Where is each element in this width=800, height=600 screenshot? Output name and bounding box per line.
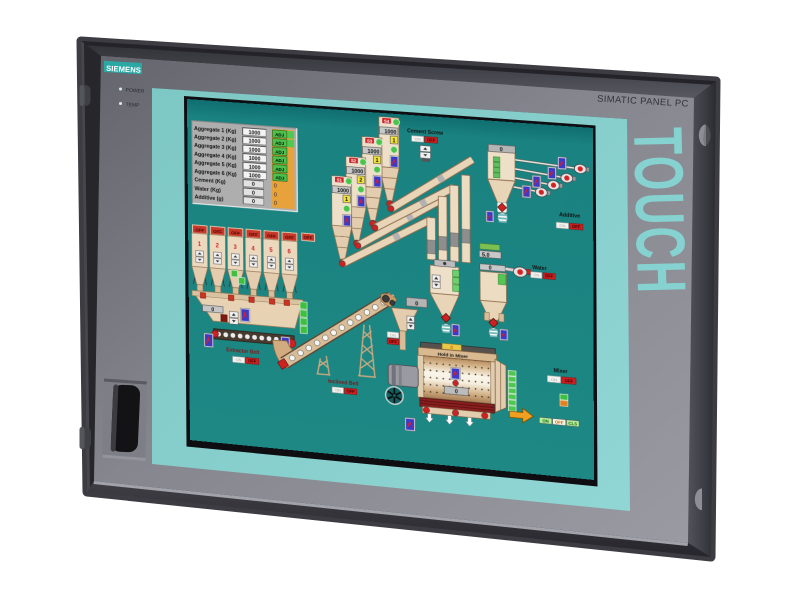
svg-text:ON: ON — [559, 223, 565, 229]
svg-text:1: 1 — [392, 138, 395, 144]
svg-text:0: 0 — [252, 199, 255, 205]
svg-text:1000: 1000 — [249, 147, 261, 154]
svg-text:ADJ: ADJ — [275, 175, 285, 181]
svg-text:1000: 1000 — [384, 129, 396, 136]
svg-text:ON: ON — [542, 418, 548, 424]
svg-text:1000: 1000 — [351, 169, 363, 176]
svg-text:S2: S2 — [351, 158, 357, 164]
svg-text:1: 1 — [345, 197, 348, 203]
svg-text:0: 0 — [274, 201, 277, 207]
svg-text:ADJ: ADJ — [275, 149, 285, 155]
svg-text:Water: Water — [532, 265, 547, 272]
svg-text:0: 0 — [252, 190, 255, 196]
svg-text:1000: 1000 — [249, 138, 261, 145]
svg-text:1000: 1000 — [249, 164, 261, 171]
svg-text:S4: S4 — [384, 118, 390, 124]
svg-text:0: 0 — [415, 301, 418, 307]
svg-text:ADJ: ADJ — [275, 141, 285, 147]
svg-text:S1: S1 — [337, 177, 343, 183]
svg-text:OFF: OFF — [248, 358, 257, 364]
svg-text:OFF: OFF — [285, 234, 294, 240]
svg-text:OFF: OFF — [389, 339, 398, 345]
svg-text:1000: 1000 — [249, 130, 261, 137]
svg-text:OFF: OFF — [555, 419, 564, 425]
svg-text:TOUCH: TOUCH — [619, 126, 700, 295]
svg-text:ON: ON — [236, 357, 242, 363]
svg-text:OFF: OFF — [427, 137, 436, 143]
svg-text:0: 0 — [211, 307, 214, 313]
svg-text:0: 0 — [274, 184, 277, 190]
svg-text:S3: S3 — [367, 138, 373, 144]
svg-text:Mixer: Mixer — [554, 368, 568, 375]
svg-text:0: 0 — [489, 265, 492, 271]
svg-text:ADJ: ADJ — [275, 132, 285, 138]
svg-text:1000: 1000 — [337, 188, 349, 195]
svg-text:ON: ON — [551, 377, 557, 383]
svg-text:0: 0 — [455, 389, 458, 395]
svg-text:OFF: OFF — [304, 235, 313, 241]
svg-text:2: 2 — [216, 243, 219, 249]
svg-text:OFF: OFF — [231, 230, 240, 236]
svg-text:1000: 1000 — [367, 149, 379, 156]
svg-text:TEMP: TEMP — [125, 102, 140, 109]
svg-text:ON: ON — [335, 387, 341, 393]
svg-text:ON: ON — [390, 332, 396, 338]
svg-text:0: 0 — [252, 182, 255, 188]
svg-text:0: 0 — [500, 147, 503, 153]
svg-text:OFF: OFF — [565, 378, 574, 384]
svg-text:0: 0 — [274, 192, 277, 198]
svg-text:CLS: CLS — [568, 420, 577, 426]
svg-text:1000: 1000 — [249, 173, 261, 180]
svg-text:5.0: 5.0 — [482, 252, 490, 259]
svg-text:ADJ: ADJ — [275, 158, 285, 164]
svg-text:OFF: OFF — [545, 273, 554, 279]
svg-text:1: 1 — [375, 158, 378, 164]
svg-text:OFF: OFF — [572, 224, 581, 230]
svg-text:1000: 1000 — [249, 156, 261, 163]
svg-text:ON: ON — [415, 136, 421, 142]
svg-text:2: 2 — [359, 178, 362, 184]
svg-text:OFF: OFF — [195, 227, 204, 233]
svg-text:OFF: OFF — [249, 232, 258, 238]
svg-text:OFF: OFF — [267, 233, 276, 239]
svg-text:OFF: OFF — [213, 229, 222, 235]
svg-text:ON: ON — [533, 272, 539, 278]
svg-text:POWER: POWER — [125, 88, 145, 95]
svg-text:OFF: OFF — [346, 388, 355, 394]
svg-text:ADJ: ADJ — [275, 166, 285, 172]
